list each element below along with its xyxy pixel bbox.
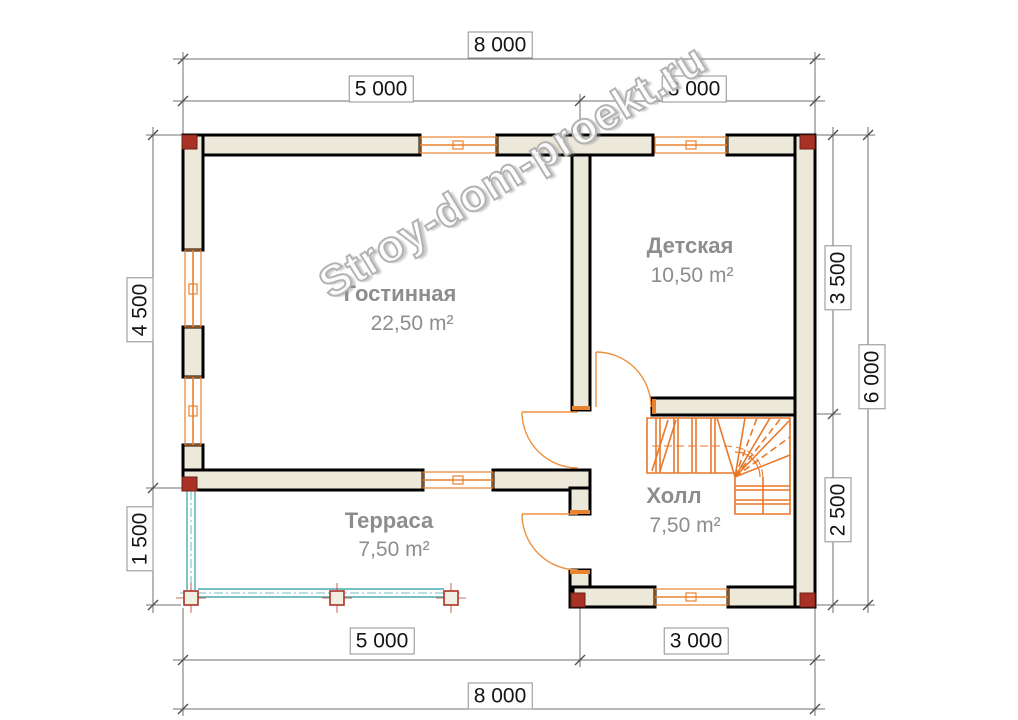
dim-bottom-right: 3 000 [664,628,729,655]
door-arc-kids-room [596,352,651,407]
window-symbol-top-living [420,137,497,153]
window-symbol-hall-south [655,589,728,605]
window-symbol-left-upper [185,250,201,327]
dim-right-upper: 3 500 [825,246,852,311]
terrace-posts [176,583,466,613]
room-area-kids: 10,50 m² [651,264,734,288]
window-symbol-left-lower [185,377,201,445]
door-arc-living-room [522,412,578,468]
dim-left-lower: 1 500 [127,507,154,572]
room-area-terrace: 7,50 m² [358,538,429,562]
dim-top-left: 5 000 [349,76,414,103]
room-label-hall: Холл [646,483,701,509]
window-symbol-top-kids [655,137,727,153]
room-label-kids: Детская [647,233,734,259]
dim-bottom-total: 8 000 [468,683,533,710]
door-arc-entrance [522,514,578,570]
dim-bottom-left: 5 000 [350,628,415,655]
room-label-terrace: Терраса [345,508,433,534]
dim-left-upper: 4 500 [127,278,154,343]
dim-right-lower: 2 500 [825,478,852,543]
dim-top-total: 8 000 [468,32,533,59]
dim-right-total: 6 000 [859,345,886,410]
room-area-living: 22,50 m² [371,312,454,336]
window-symbol-living-south [423,472,493,488]
floor-plan-page: Stroy-dom-proekt.ru Гостинная 22,50 m² Д… [0,0,1018,720]
room-area-hall: 7,50 m² [649,514,720,538]
